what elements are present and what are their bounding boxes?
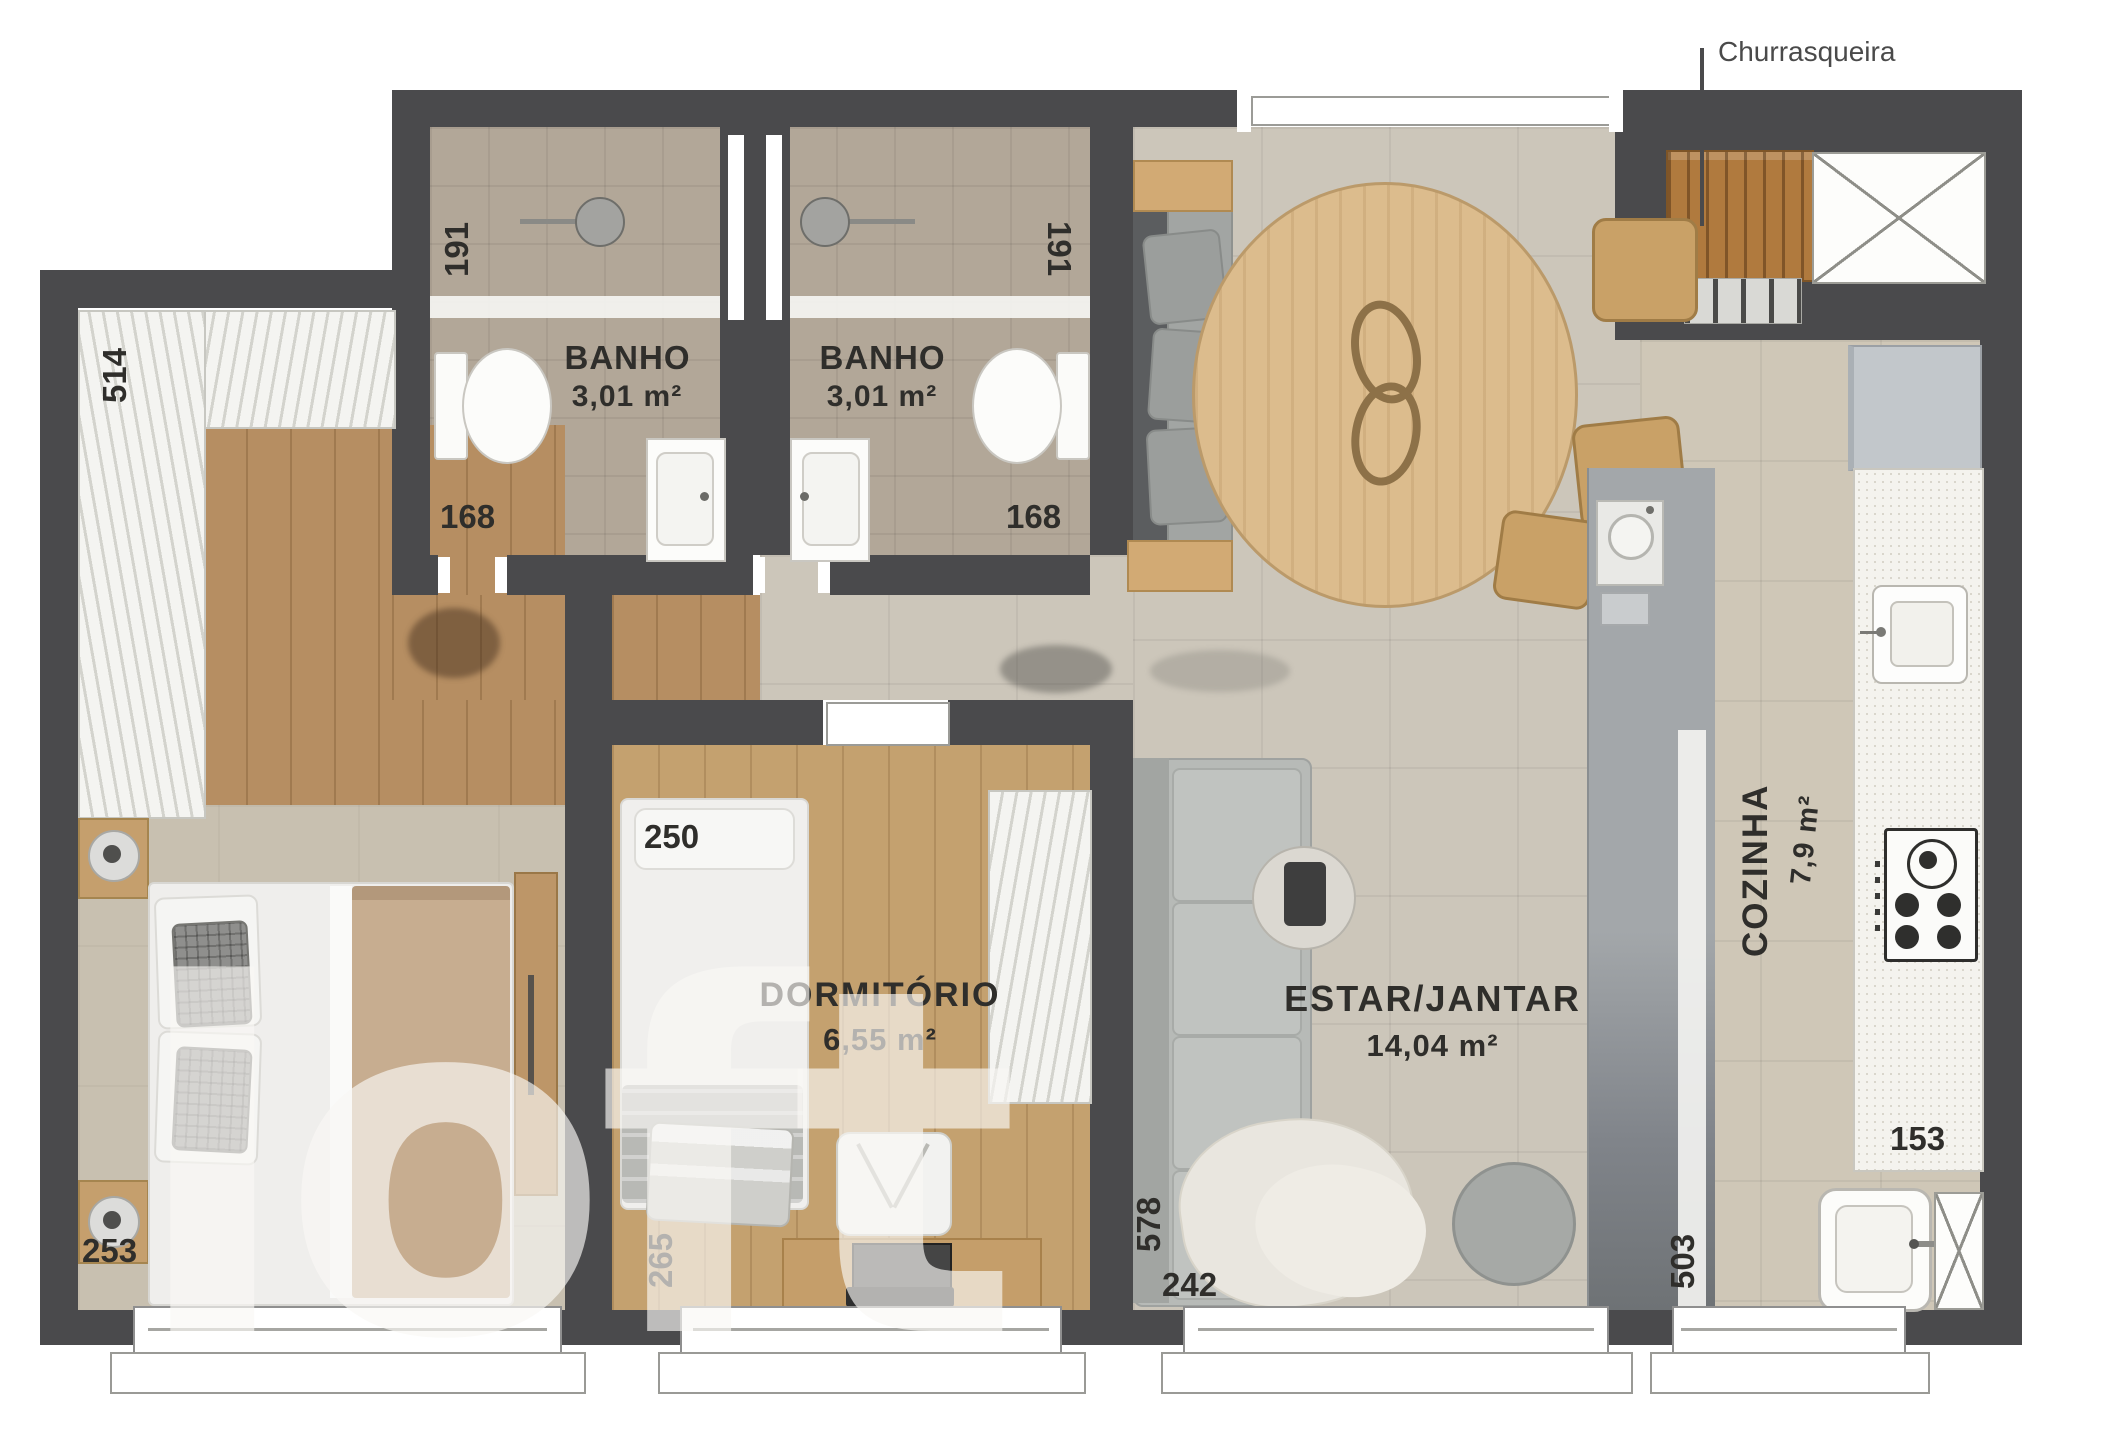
- fridge: [1848, 345, 1982, 471]
- toilet-bowl: [972, 348, 1062, 464]
- wall-living-left: [1090, 127, 1133, 555]
- floor-artifact: [1150, 650, 1290, 692]
- shower-glass-panel: [728, 135, 744, 320]
- floor-plan: Churrasqueira BANHO 3,01 m² 191 168 BANH…: [0, 0, 2119, 1440]
- faucet-icon: [1909, 1239, 1919, 1249]
- churrasqueira-label: Churrasqueira: [1718, 36, 2018, 72]
- window-living: [1183, 1306, 1609, 1356]
- burner-icon: [1937, 925, 1961, 949]
- window-sill: [1650, 1352, 1930, 1394]
- faucet-icon: [800, 492, 809, 501]
- wall-master-top: [40, 270, 430, 308]
- faucet-icon: [1860, 631, 1878, 634]
- dim-banho-right-width: 168: [1006, 498, 1061, 536]
- wall-dorm-top: [948, 700, 1133, 745]
- bath-sink: [646, 438, 726, 562]
- toilet-bowl: [462, 348, 552, 464]
- room-label-banho-left: BANHO: [540, 340, 715, 376]
- bench-wood-cap: [1127, 540, 1233, 592]
- faucet-icon: [700, 492, 709, 501]
- shower-arm: [845, 219, 915, 224]
- shower-glass-panel: [766, 135, 782, 320]
- cooktop: [1884, 828, 1978, 962]
- bench-wood-cap: [1133, 160, 1233, 212]
- dim-banho-left-depth: 191: [436, 178, 478, 320]
- room-label-banho-right: BANHO: [795, 340, 970, 376]
- dim-banho-left-width: 168: [440, 498, 495, 536]
- churrasqueira-leader-line: [1700, 48, 1704, 226]
- room-area-banho-right: 3,01 m²: [807, 380, 957, 414]
- shower-head-icon: [800, 197, 850, 247]
- entry-door: [1251, 96, 1613, 126]
- kitchen-counter: [1853, 468, 1984, 1172]
- kitchen-sink: [1872, 585, 1968, 684]
- lamp-icon: [103, 845, 121, 863]
- wall-top: [392, 90, 1245, 127]
- room-label-cozinha: COZINHA: [1728, 755, 1784, 985]
- sink-basin: [1890, 601, 1954, 667]
- door-jamb: [438, 557, 450, 593]
- peninsula-sink: [1596, 500, 1664, 586]
- door-jamb: [495, 557, 507, 593]
- peninsula-appliance: [1600, 592, 1650, 626]
- floor-artifact: [408, 608, 500, 678]
- wall-bath-bottom: [392, 555, 438, 595]
- dim-banho-right-depth: 191: [1038, 178, 1080, 320]
- sink-basin: [802, 452, 860, 546]
- shower-head-icon: [575, 197, 625, 247]
- door-jamb: [753, 557, 765, 593]
- bath-sink: [790, 438, 870, 562]
- dining-chair: [1592, 218, 1698, 322]
- burner-icon: [1937, 893, 1961, 917]
- dim-estar-window: 242: [1162, 1266, 1217, 1304]
- loft-watermark: loft: [130, 950, 930, 1440]
- window-kitchen: [1672, 1306, 1906, 1356]
- window-sill: [1161, 1352, 1633, 1394]
- faucet-icon: [1646, 506, 1654, 514]
- floor-artifact: [1000, 645, 1112, 693]
- door-jamb: [1609, 85, 1623, 132]
- wall-right: [1980, 90, 2022, 1345]
- side-table-tray: [1284, 862, 1326, 926]
- tub-basin: [1835, 1205, 1913, 1293]
- dim-estar-depth: 578: [1126, 1172, 1172, 1277]
- sink-basin: [1608, 514, 1654, 560]
- burner-icon: [1919, 851, 1937, 869]
- door-jamb: [818, 557, 830, 593]
- dim-cozinha-width: 153: [1890, 1120, 1945, 1158]
- cooktop-knobs: [1875, 861, 1880, 931]
- room-area-estar: 14,04 m²: [1320, 1028, 1545, 1064]
- dim-cozinha-depth: 503: [1660, 1210, 1706, 1312]
- dim-closet: 514: [92, 320, 138, 430]
- dining-chair: [1491, 509, 1601, 612]
- door-jamb: [1237, 85, 1251, 132]
- burner-icon: [1895, 893, 1919, 917]
- room-area-banho-left: 3,01 m²: [552, 380, 702, 414]
- dim-dorm-width: 250: [644, 818, 699, 856]
- dim-master-window: 253: [82, 1232, 137, 1270]
- burner-icon: [1895, 925, 1919, 949]
- wall-left: [40, 270, 78, 1345]
- room-label-estar: ESTAR/JANTAR: [1295, 978, 1570, 1020]
- laundry-tub: [1818, 1188, 1932, 1312]
- wall-bath-left: [392, 90, 430, 595]
- lamp-icon: [103, 1211, 121, 1229]
- duct-shaft: [1934, 1192, 1984, 1310]
- pouf-chair: [1452, 1162, 1576, 1286]
- grill-rack: [1684, 278, 1802, 324]
- dorm-door: [826, 702, 950, 746]
- duct-shaft: [1812, 152, 1986, 284]
